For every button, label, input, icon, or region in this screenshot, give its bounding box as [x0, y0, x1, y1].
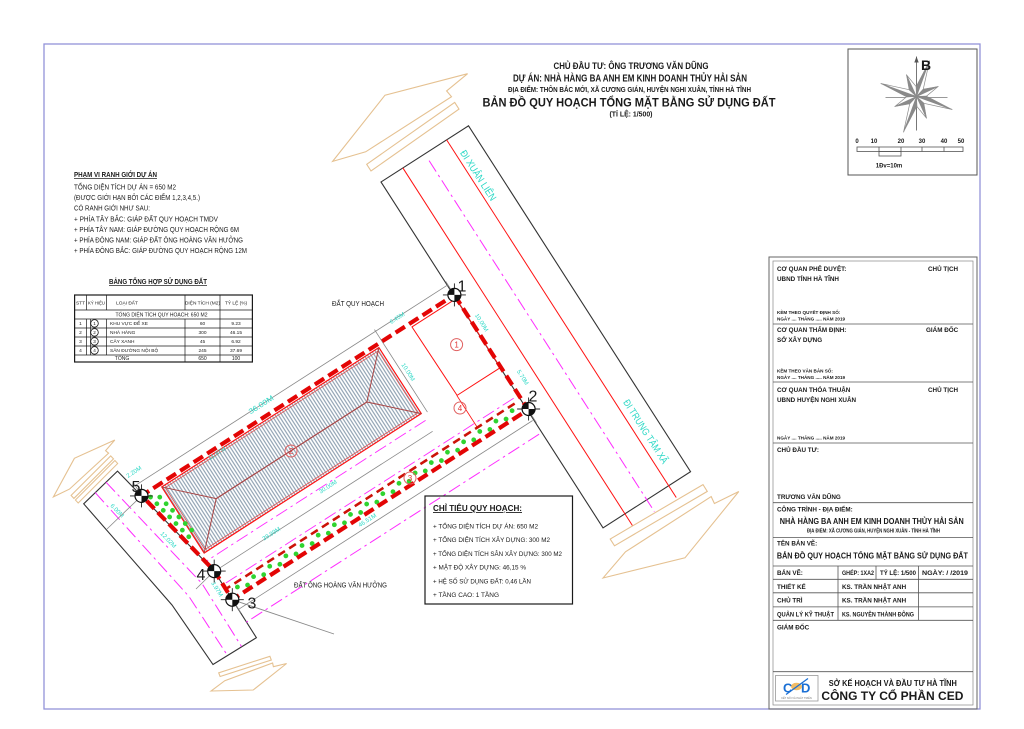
svg-text:ĐỊA ĐIỂM: THÔN BẮC MỚI, XÃ CƯƠ: ĐỊA ĐIỂM: THÔN BẮC MỚI, XÃ CƯƠNG GIÁN, H…: [508, 85, 751, 94]
svg-text:CÔNG TRÌNH - ĐỊA ĐIỂM:: CÔNG TRÌNH - ĐỊA ĐIỂM:: [777, 505, 853, 514]
svg-text:BẢN ĐỒ QUY HOẠCH TỔNG MẶT BẰNG: BẢN ĐỒ QUY HOẠCH TỔNG MẶT BẰNG SỬ DỤNG Đ…: [777, 550, 969, 561]
svg-text:+ TỔNG DIỆN TÍCH XÂY DỰNG: 300: + TỔNG DIỆN TÍCH XÂY DỰNG: 300 M2: [433, 535, 550, 544]
svg-text:+ HỆ SỐ SỬ DỤNG ĐẤT: 0,46 LẦN: + HỆ SỐ SỬ DỤNG ĐẤT: 0,46 LẦN: [433, 575, 531, 585]
svg-text:CHỦ ĐẦU TƯ: ÔNG TRƯƠNG VĂN DŨN: CHỦ ĐẦU TƯ: ÔNG TRƯƠNG VĂN DŨNG: [554, 60, 709, 72]
svg-text:1: 1: [79, 321, 82, 327]
svg-text:40: 40: [941, 139, 948, 145]
svg-text:CHỦ TRÌ: CHỦ TRÌ: [777, 596, 803, 605]
svg-text:TRƯƠNG VĂN DŨNG: TRƯƠNG VĂN DŨNG: [777, 492, 841, 501]
svg-text:NGÀY .... THÁNG ..... NĂM 2019: NGÀY .... THÁNG ..... NĂM 2019: [777, 316, 846, 322]
svg-text:KẾT NỐI VÀ PHÁT TRIỂN: KẾT NỐI VÀ PHÁT TRIỂN: [781, 695, 812, 700]
svg-text:KS. TRẦN NHẬT ANH: KS. TRẦN NHẬT ANH: [842, 581, 907, 591]
svg-text:2: 2: [289, 447, 294, 456]
svg-text:CHỦ ĐẦU TƯ:: CHỦ ĐẦU TƯ:: [777, 444, 819, 454]
svg-text:4: 4: [197, 567, 206, 584]
svg-text:2.20M: 2.20M: [126, 466, 143, 480]
svg-text:1: 1: [458, 279, 467, 296]
svg-text:TỔNG: TỔNG: [115, 355, 130, 362]
svg-text:3: 3: [248, 596, 257, 613]
svg-text:10: 10: [871, 139, 878, 145]
svg-text:CÂY XANH: CÂY XANH: [110, 338, 135, 345]
svg-text:KÈM THEO QUYẾT ĐỊNH SỐ:: KÈM THEO QUYẾT ĐỊNH SỐ:: [777, 308, 841, 315]
svg-text:3: 3: [408, 474, 413, 483]
svg-text:37.69: 37.69: [230, 348, 242, 354]
svg-text:60: 60: [200, 321, 206, 327]
svg-text:650: 650: [198, 356, 207, 362]
svg-text:5.70M: 5.70M: [515, 369, 529, 386]
svg-text:NGÀY .... THÁNG ..... NĂM 2019: NGÀY .... THÁNG ..... NĂM 2019: [777, 374, 846, 380]
svg-text:30: 30: [919, 139, 926, 145]
svg-text:UBND HUYỆN NGHI XUÂN: UBND HUYỆN NGHI XUÂN: [777, 395, 857, 404]
svg-text:ĐẤT ÔNG HOÀNG VĂN HƯỞNG: ĐẤT ÔNG HOÀNG VĂN HƯỞNG: [294, 580, 387, 590]
svg-text:245: 245: [198, 348, 206, 354]
svg-text:+ PHÍA TÂY BẮC: GIÁP ĐẤT QUY: + PHÍA TÂY BẮC: GIÁP ĐẤT QUY HOẠCH TMDV: [74, 214, 218, 224]
svg-text:ĐI XUÂN LIÊN: ĐI XUÂN LIÊN: [457, 147, 499, 203]
svg-text:NGÀY: / /2019: NGÀY: / /2019: [922, 568, 969, 577]
svg-text:6.92: 6.92: [231, 339, 241, 345]
svg-text:4: 4: [79, 348, 82, 354]
svg-text:+ TỔNG DIỆN TÍCH SÂN XÂY DỰNG:: + TỔNG DIỆN TÍCH SÂN XÂY DỰNG: 300 M2: [433, 549, 562, 558]
svg-text:+ MẬT ĐỘ XÂY DỰNG: 46,15 %: + MẬT ĐỘ XÂY DỰNG: 46,15 %: [433, 563, 526, 572]
svg-text:ĐI TRUNG TÂM XÃ: ĐI TRUNG TÂM XÃ: [620, 397, 671, 467]
svg-text:2: 2: [529, 389, 538, 406]
svg-text:BẢN VẼ:: BẢN VẼ:: [777, 568, 803, 577]
svg-text:TỶ LỆ (%): TỶ LỆ (%): [225, 299, 248, 307]
svg-text:5: 5: [132, 479, 141, 496]
svg-text:TỔNG DIỆN TÍCH DỰ ÁN = 650 M2: TỔNG DIỆN TÍCH DỰ ÁN = 650 M2: [74, 183, 176, 192]
svg-text:LOẠI ĐẤT: LOẠI ĐẤT: [116, 300, 138, 307]
svg-text:2: 2: [93, 330, 96, 335]
svg-text:TỶ LỆ: 1/500: TỶ LỆ: 1/500: [880, 568, 916, 577]
svg-text:KÝ HIỆU: KÝ HIỆU: [88, 299, 105, 307]
svg-text:KHU VỰC ĐỂ XE: KHU VỰC ĐỂ XE: [110, 320, 148, 327]
svg-text:CƠ QUAN THỎA THUẬN: CƠ QUAN THỎA THUẬN: [777, 385, 851, 394]
svg-text:CƠ QUAN PHÊ DUYỆT:: CƠ QUAN PHÊ DUYỆT:: [777, 264, 846, 273]
svg-text:KS. TRẦN NHẬT ANH: KS. TRẦN NHẬT ANH: [842, 595, 907, 605]
svg-text:+ PHÍA TÂY NAM: GIÁP ĐƯỜNG QUY: + PHÍA TÂY NAM: GIÁP ĐƯỜNG QUY HOẠCH RỘN…: [74, 225, 239, 234]
svg-text:SỞ XÂY DỰNG: SỞ XÂY DỰNG: [777, 335, 822, 344]
svg-text:3.97M: 3.97M: [209, 581, 223, 598]
svg-text:BẢNG TỔNG HỢP SỬ DỤNG ĐẤT: BẢNG TỔNG HỢP SỬ DỤNG ĐẤT: [109, 276, 208, 286]
svg-text:+ PHÍA ĐÔNG BẮC: GIÁP ĐƯỜNG QU: + PHÍA ĐÔNG BẮC: GIÁP ĐƯỜNG QUY HOẠCH RỘ…: [74, 246, 247, 255]
svg-text:+ PHÍA ĐÔNG NAM: GIÁP ĐẤT ÔNG: + PHÍA ĐÔNG NAM: GIÁP ĐẤT ÔNG HOÀNG VĂN …: [74, 235, 243, 245]
svg-text:GIÁM ĐỐC: GIÁM ĐỐC: [926, 324, 959, 334]
svg-text:STT: STT: [76, 301, 85, 307]
svg-text:CƠ QUAN THẨM ĐỊNH:: CƠ QUAN THẨM ĐỊNH:: [777, 325, 846, 334]
svg-text:ĐẤT QUY HOẠCH: ĐẤT QUY HOẠCH: [332, 298, 384, 308]
svg-text:TỔNG DIỆN TÍCH QUY HOẠCH: 650: TỔNG DIỆN TÍCH QUY HOẠCH: 650 M2: [116, 311, 208, 319]
svg-text:CHỦ TỊCH: CHỦ TỊCH: [928, 264, 959, 273]
svg-text:TÊN BẢN VẼ:: TÊN BẢN VẼ:: [777, 539, 817, 548]
svg-text:B: B: [921, 57, 931, 73]
svg-text:THIẾT KẾ: THIẾT KẾ: [777, 581, 806, 591]
svg-text:CÔNG TY CỔ PHẦN CED: CÔNG TY CỔ PHẦN CED: [821, 688, 963, 703]
svg-text:45: 45: [200, 339, 206, 345]
svg-text:50: 50: [958, 139, 965, 145]
svg-text:(TỈ LỆ: 1/500): (TỈ LỆ: 1/500): [610, 110, 653, 119]
svg-text:39.99M: 39.99M: [262, 527, 282, 543]
svg-text:SỞ KẾ HOẠCH VÀ ĐẦU TƯ HÀ TĨNH: SỞ KẾ HOẠCH VÀ ĐẦU TƯ HÀ TĨNH: [829, 678, 957, 688]
svg-text:CHỈ TIÊU QUY HOẠCH:: CHỈ TIÊU QUY HOẠCH:: [433, 502, 522, 513]
svg-text:DỰ ÁN: NHÀ HÀNG BA ANH EM KINH: DỰ ÁN: NHÀ HÀNG BA ANH EM KINH DOANH THỦ…: [513, 72, 747, 85]
svg-text:300: 300: [198, 330, 206, 336]
svg-text:QUẢN LÝ KỸ THUẬT: QUẢN LÝ KỸ THUẬT: [777, 610, 834, 619]
svg-text:NGÀY .... THÁNG ..... NĂM 2019: NGÀY .... THÁNG ..... NĂM 2019: [777, 435, 846, 441]
svg-text:2: 2: [79, 330, 82, 336]
svg-text:CHỦ TỊCH: CHỦ TỊCH: [928, 385, 959, 394]
svg-text:(ĐƯỢC GIỚI HẠN BỞI CÁC ĐIỂM 1,: (ĐƯỢC GIỚI HẠN BỞI CÁC ĐIỂM 1,2,3,4,5.): [74, 193, 200, 202]
svg-text:GIÁM ĐỐC: GIÁM ĐỐC: [777, 622, 810, 632]
svg-text:SÂN ĐƯỜNG NỘI BỘ: SÂN ĐƯỜNG NỘI BỘ: [110, 347, 158, 354]
svg-text:KS. NGUYỄN THÀNH ĐÔNG: KS. NGUYỄN THÀNH ĐÔNG: [842, 610, 914, 619]
svg-text:BẢN ĐỒ QUY HOẠCH TỔNG MẶT BẰNG: BẢN ĐỒ QUY HOẠCH TỔNG MẶT BẰNG SỬ DỤNG Đ…: [483, 94, 777, 109]
svg-text:30.00M: 30.00M: [318, 480, 338, 496]
svg-text:9.23: 9.23: [231, 321, 241, 327]
svg-text:NHÀ HÀNG BA ANH EM KINH DOANH: NHÀ HÀNG BA ANH EM KINH DOANH THỦY HẢI S…: [780, 515, 964, 526]
svg-text:PHẠM VI RANH GIỚI DỰ ÁN: PHẠM VI RANH GIỚI DỰ ÁN: [74, 170, 157, 179]
svg-text:CÓ RANH GIỚI NHƯ SAU:: CÓ RANH GIỚI NHƯ SAU:: [74, 204, 150, 213]
svg-text:ĐỊA ĐIỂM: XÃ CƯƠNG GIÁN, HUYỆN: ĐỊA ĐIỂM: XÃ CƯƠNG GIÁN, HUYỆN NGHI XUÂN…: [807, 527, 940, 535]
svg-text:KÈM THEO VĂN BẢN SỐ:: KÈM THEO VĂN BẢN SỐ:: [777, 367, 833, 374]
svg-text:4: 4: [93, 348, 96, 353]
svg-text:+ TẦNG CAO: 1 TẦNG: + TẦNG CAO: 1 TẦNG: [433, 589, 499, 599]
svg-text:36.00M: 36.00M: [247, 393, 275, 416]
svg-text:+ TỔNG DIỆN TÍCH DỰ ÁN: 650 M2: + TỔNG DIỆN TÍCH DỰ ÁN: 650 M2: [433, 522, 538, 531]
svg-text:1: 1: [454, 340, 459, 349]
svg-text:4: 4: [458, 404, 463, 413]
svg-text:6.45M: 6.45M: [389, 312, 406, 326]
svg-text:1: 1: [93, 321, 96, 326]
svg-text:100: 100: [232, 356, 241, 362]
svg-text:DIỆN TÍCH (M2): DIỆN TÍCH (M2): [185, 299, 220, 307]
svg-text:3: 3: [93, 339, 96, 344]
svg-text:46.15: 46.15: [230, 330, 242, 336]
svg-text:0: 0: [855, 139, 859, 145]
svg-text:UBND TỈNH HÀ TĨNH: UBND TỈNH HÀ TĨNH: [777, 274, 839, 283]
svg-text:1Đv=10m: 1Đv=10m: [876, 164, 903, 170]
svg-text:NHÀ HÀNG: NHÀ HÀNG: [110, 329, 136, 336]
svg-text:3: 3: [79, 339, 82, 345]
svg-text:6.00M: 6.00M: [109, 503, 125, 519]
svg-text:GHÉP: 1XA2: GHÉP: 1XA2: [842, 568, 874, 577]
svg-text:20: 20: [898, 139, 905, 145]
